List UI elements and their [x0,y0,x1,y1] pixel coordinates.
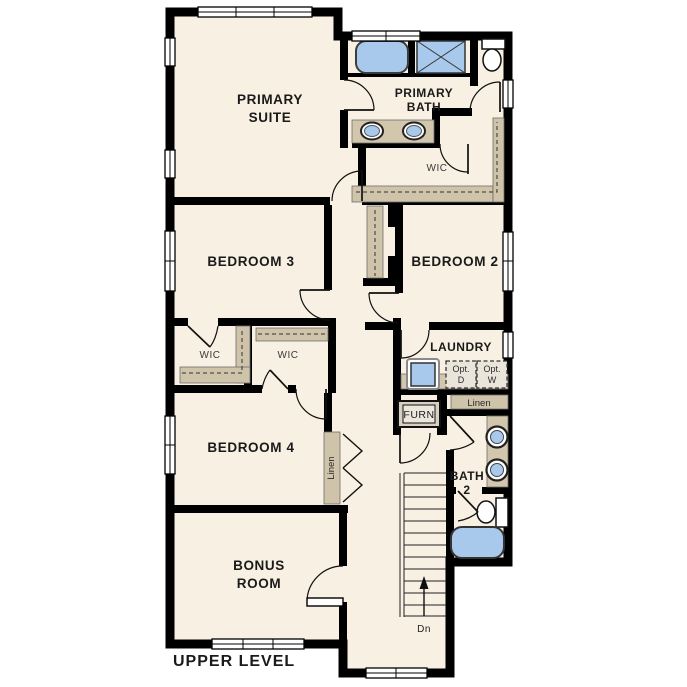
label-opt-washer-line1: Opt. [483,364,500,374]
primary-tub [356,41,408,73]
label-bonus-room-line1: BONUS [233,558,285,573]
window [165,150,175,178]
label-wic-left: WIC [200,350,221,361]
label-bath2-line1: BATH [450,469,484,483]
label-linen-bedroom4: Linen [326,456,337,479]
floor-plan-canvas: PRIMARY SUITE PRIMARY BATH WIC BEDROOM 3… [0,0,687,687]
primary-wic-shelf-right [493,118,504,202]
window [366,668,427,678]
label-bonus-room-line2: ROOM [237,576,281,591]
primary-shower [417,41,465,73]
label-laundry: LAUNDRY [430,340,492,354]
window [198,7,312,17]
label-stairs-down: Dn [417,624,431,635]
label-bedroom2: BEDROOM 2 [411,254,498,269]
window [165,231,175,291]
window [503,232,513,291]
label-bedroom3: BEDROOM 3 [207,254,294,269]
label-primary-suite-line2: SUITE [249,110,292,125]
label-primary-bath-line2: BATH [407,100,441,114]
window [503,80,513,108]
page-title: UPPER LEVEL [173,653,295,670]
window [165,416,175,474]
label-primary-wic: WIC [427,163,448,174]
primary-wic-shelf-bottom [352,186,493,202]
window [503,332,513,358]
label-bedroom4: BEDROOM 4 [207,440,294,455]
window [352,31,420,41]
bath2-tub [451,527,504,558]
window [212,639,304,649]
label-wic-right: WIC [278,350,299,361]
label-bath2-line2: 2 [463,483,470,497]
label-opt-washer-line2: W [488,375,497,385]
label-primary-suite-line1: PRIMARY [237,92,303,107]
wic-left-shelf-bottom [180,367,250,383]
label-primary-bath-line1: PRIMARY [395,86,453,100]
laundry-sink [407,359,439,389]
label-furnace: FURN [403,409,434,421]
floor-plan: PRIMARY SUITE PRIMARY BATH WIC BEDROOM 3… [0,0,687,687]
window [165,38,175,66]
label-opt-dryer-line1: Opt. [452,364,469,374]
label-opt-dryer-line2: D [458,375,465,385]
label-linen-hall: Linen [467,398,490,409]
